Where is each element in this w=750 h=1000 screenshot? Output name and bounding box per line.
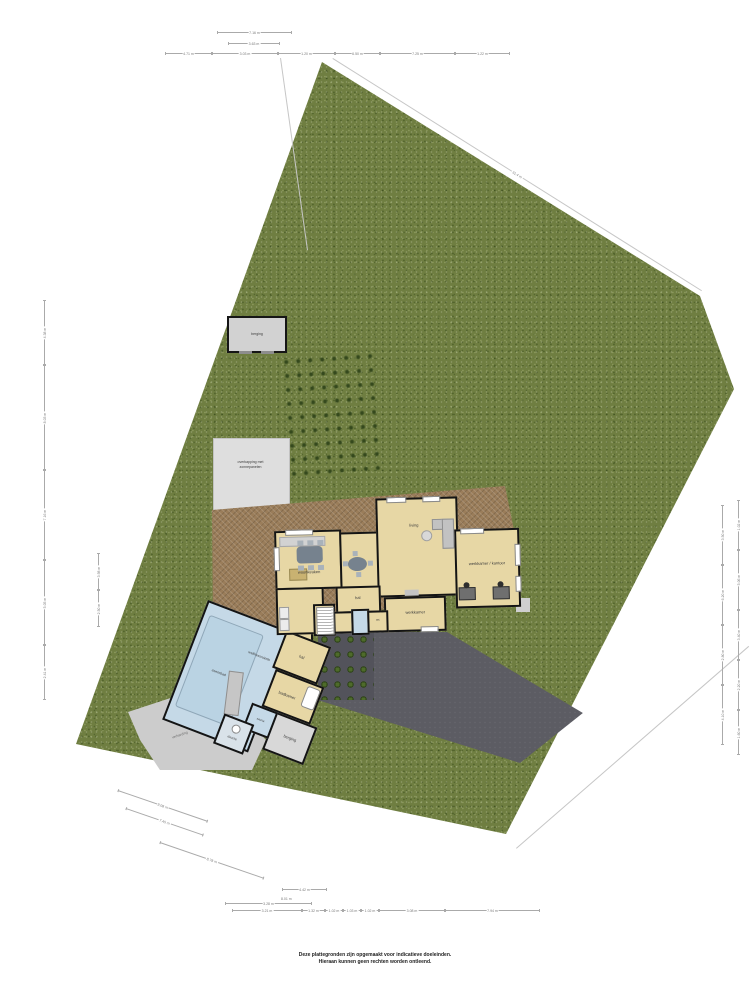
dim-top-row3: 1.20 m <box>278 53 335 54</box>
dim-left: 5.05 m <box>44 560 45 645</box>
dim-right-outer: 2.20 m <box>738 660 739 710</box>
dim-right-inner: 6.20 m <box>722 565 723 625</box>
carport-label: overkapping met zonnepanelen <box>213 460 288 470</box>
fridge <box>279 607 289 619</box>
wc-label: wc <box>367 617 388 622</box>
window <box>461 529 483 534</box>
window <box>423 497 439 501</box>
chair <box>307 540 313 545</box>
window <box>516 577 520 591</box>
orchard-trees <box>280 349 384 479</box>
dim-top-row3: 6.50 m <box>335 53 380 54</box>
dim-left-inner: 2.50 m <box>98 590 99 627</box>
dim-bottom-rowC: 3.21 m <box>232 910 302 911</box>
chair <box>356 572 361 577</box>
appliance <box>279 619 289 631</box>
shed-door <box>239 351 252 354</box>
boundary-length-label: 31.4 m <box>511 170 524 180</box>
dim-top-row1: 7.16 m <box>217 32 292 33</box>
desk <box>493 586 510 599</box>
dim-bottom-rowA2: 8.01 m <box>280 897 293 901</box>
dim-left: 2.41 m <box>44 645 45 700</box>
site-plan: 31.4 m overkapping met zonnepanelen berg… <box>0 0 750 1000</box>
dim-right-outer: 5.06 m <box>738 550 739 610</box>
dim-top-row3: 3.03 m <box>212 53 278 54</box>
dim-top-row3: 1.22 m <box>455 53 510 54</box>
dim-left: 7.16 m <box>44 470 45 560</box>
dim-bottom-rowC: 1.03 m <box>343 910 361 911</box>
stairs <box>316 607 335 635</box>
shed-label: berging <box>227 332 287 337</box>
dim-right-inner: 3.50 m <box>722 505 723 565</box>
desk-chair <box>497 581 503 587</box>
doormat <box>405 589 419 595</box>
dim-bottom-rowB: 3.28 m <box>225 903 312 904</box>
dim-bottom-rowC: 1.02 m <box>361 910 379 911</box>
dim-left: 8.03 m <box>44 365 45 470</box>
dim-top-row3: 4.71 m <box>165 53 212 54</box>
dim-right-outer: 1.60 m <box>738 710 739 755</box>
dim-right-inner: 2.80 m <box>722 625 723 685</box>
desk <box>459 587 476 600</box>
window <box>422 627 438 631</box>
dim-top-row3: 7.25 m <box>380 53 455 54</box>
dim-bottom-rowC: 3.08 m <box>379 910 445 911</box>
hal-label: hal <box>338 595 378 601</box>
chair <box>353 551 358 556</box>
dim-diagonal: 8.78 m <box>160 842 264 879</box>
dim-bottom-rowC: 1.02 m <box>325 910 343 911</box>
dim-left: 4.38 m <box>44 300 45 365</box>
dim-left-inner: 3.98 m <box>98 553 99 590</box>
dim-bottom-rowA: 4.42 m <box>282 889 327 890</box>
chair <box>343 561 348 566</box>
chair <box>368 561 373 566</box>
disclaimer: Deze plattegronden zijn opgemaakt voor i… <box>0 952 750 965</box>
chair <box>317 540 323 545</box>
dim-bottom-rowC: 1.32 m <box>302 910 325 911</box>
dim-top-row2: 3.63 m <box>228 43 280 44</box>
dim-right-inner: 4.10 m <box>722 685 723 745</box>
dim-bottom-rowC: 7.94 m <box>445 910 540 911</box>
window <box>286 530 312 535</box>
dining-table <box>296 546 322 564</box>
dim-right-outer: 1.02 m <box>738 500 739 550</box>
dim-right-outer: 3.40 m <box>738 610 739 660</box>
chair <box>297 540 303 545</box>
dim-diagonal: 9.08 m <box>118 790 208 822</box>
shed-door <box>261 351 274 354</box>
dim-diagonal: 7.45 m <box>126 808 204 836</box>
window <box>387 498 405 502</box>
window <box>274 548 279 570</box>
disclaimer-line2: Hieraan kunnen geen rechten worden ontle… <box>0 959 750 966</box>
main-house: living woonkeuken werkkamer / kantoor ha… <box>273 495 521 637</box>
